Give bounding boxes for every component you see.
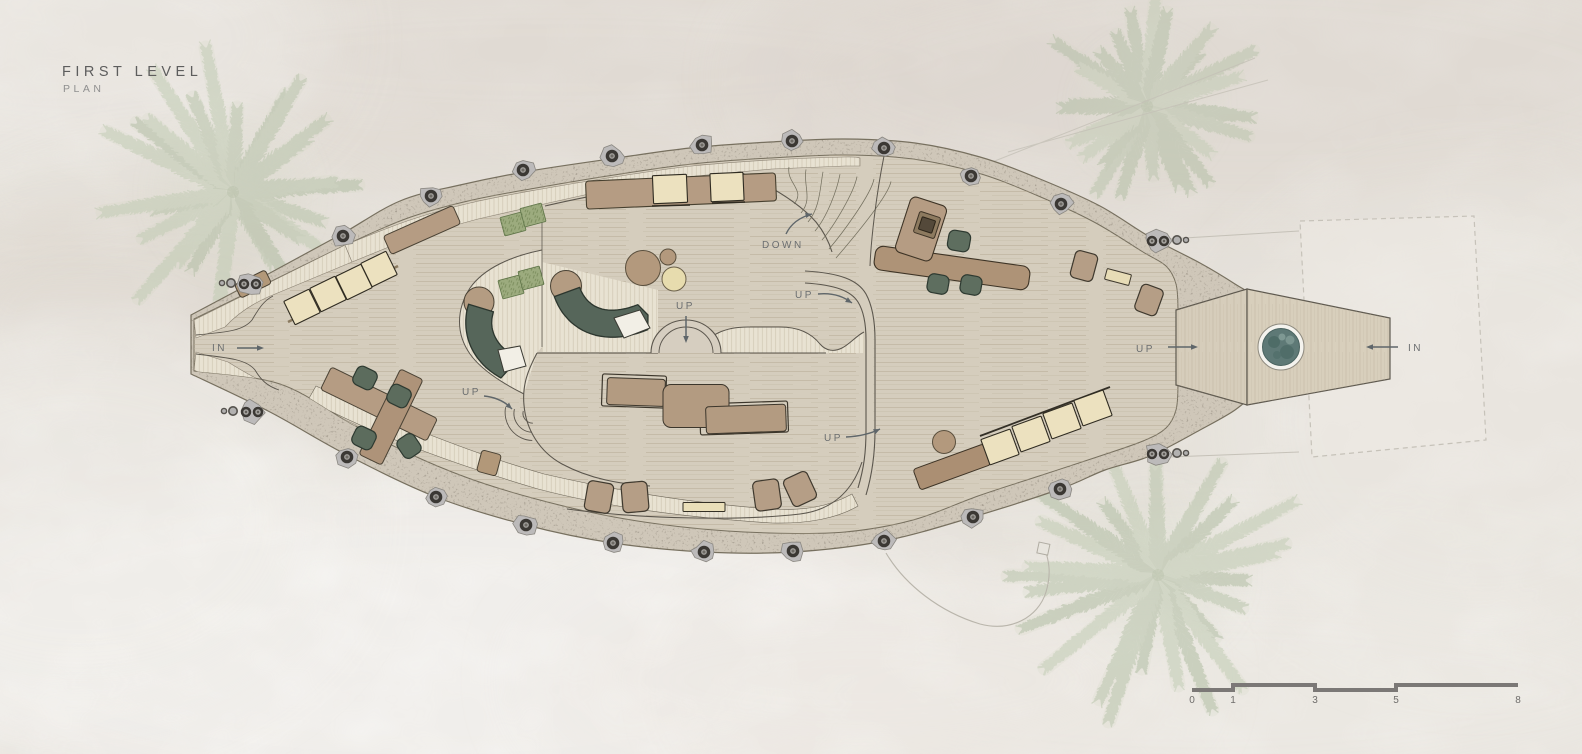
svg-text:3: 3 (1312, 695, 1318, 706)
svg-text:UP: UP (795, 290, 814, 301)
svg-text:DOWN: DOWN (762, 240, 804, 251)
svg-text:1: 1 (1230, 695, 1236, 706)
svg-text:UP: UP (462, 387, 481, 398)
svg-text:IN: IN (1408, 343, 1423, 354)
svg-text:UP: UP (676, 301, 695, 312)
svg-text:PLAN: PLAN (63, 83, 104, 95)
svg-text:5: 5 (1393, 695, 1399, 706)
svg-text:8: 8 (1515, 695, 1521, 706)
svg-text:UP: UP (1136, 344, 1155, 355)
svg-text:0: 0 (1189, 695, 1195, 706)
svg-text:IN: IN (212, 343, 227, 354)
svg-text:FIRST LEVEL: FIRST LEVEL (62, 64, 202, 80)
svg-text:UP: UP (824, 433, 843, 444)
